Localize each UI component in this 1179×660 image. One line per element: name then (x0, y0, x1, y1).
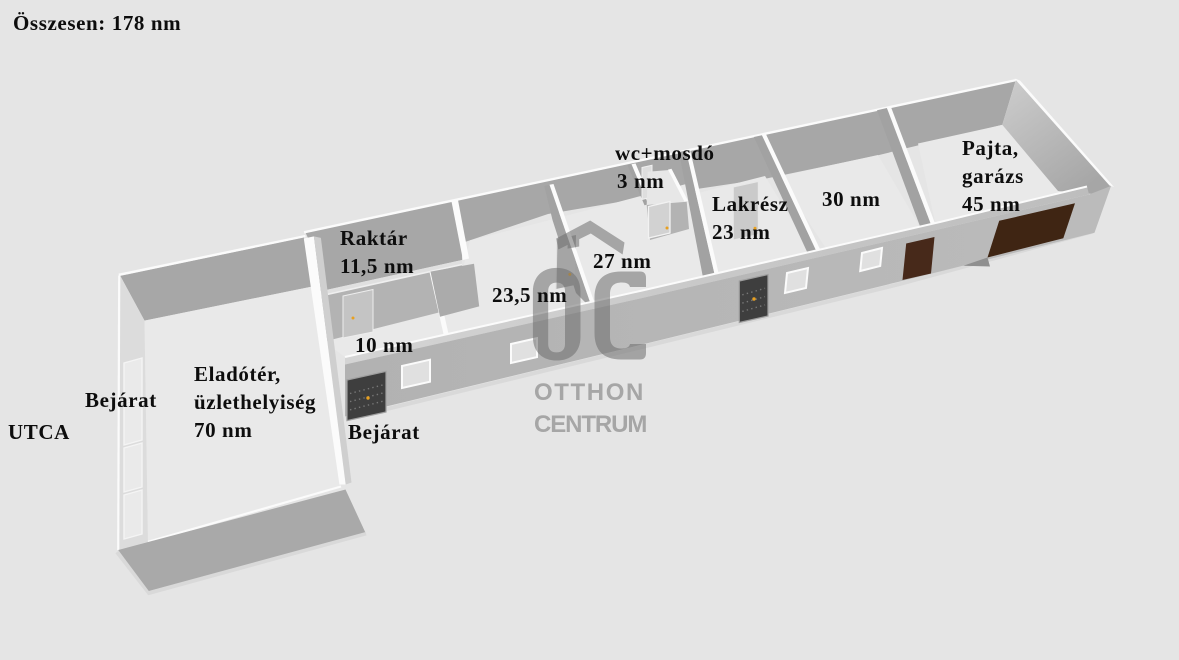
svg-text:10 nm: 10 nm (355, 333, 413, 357)
svg-text:11,5 nm: 11,5 nm (340, 254, 414, 278)
svg-text:wc+mosdó: wc+mosdó (615, 141, 715, 165)
svg-text:UTCA: UTCA (8, 420, 70, 444)
svg-text:Összesen: 178 nm: Összesen: 178 nm (13, 11, 181, 35)
svg-text:23 nm: 23 nm (712, 220, 770, 244)
svg-text:27 nm: 27 nm (593, 249, 651, 273)
svg-text:70 nm: 70 nm (194, 418, 252, 442)
svg-text:30 nm: 30 nm (822, 187, 880, 211)
svg-text:Bejárat: Bejárat (85, 388, 157, 412)
svg-text:Eladótér,: Eladótér, (194, 362, 281, 386)
svg-text:3 nm: 3 nm (617, 169, 664, 193)
svg-text:garázs: garázs (962, 164, 1024, 188)
svg-text:üzlethelyiség: üzlethelyiség (194, 390, 316, 414)
svg-text:Pajta,: Pajta, (962, 136, 1019, 160)
svg-text:Raktár: Raktár (340, 226, 408, 250)
svg-text:OTTHON: OTTHON (534, 379, 645, 406)
svg-text:Lakrész: Lakrész (712, 192, 789, 216)
svg-text:Bejárat: Bejárat (348, 420, 420, 444)
svg-text:45 nm: 45 nm (962, 192, 1020, 216)
svg-text:CENTRUM: CENTRUM (534, 411, 646, 438)
svg-text:23,5 nm: 23,5 nm (492, 283, 567, 307)
